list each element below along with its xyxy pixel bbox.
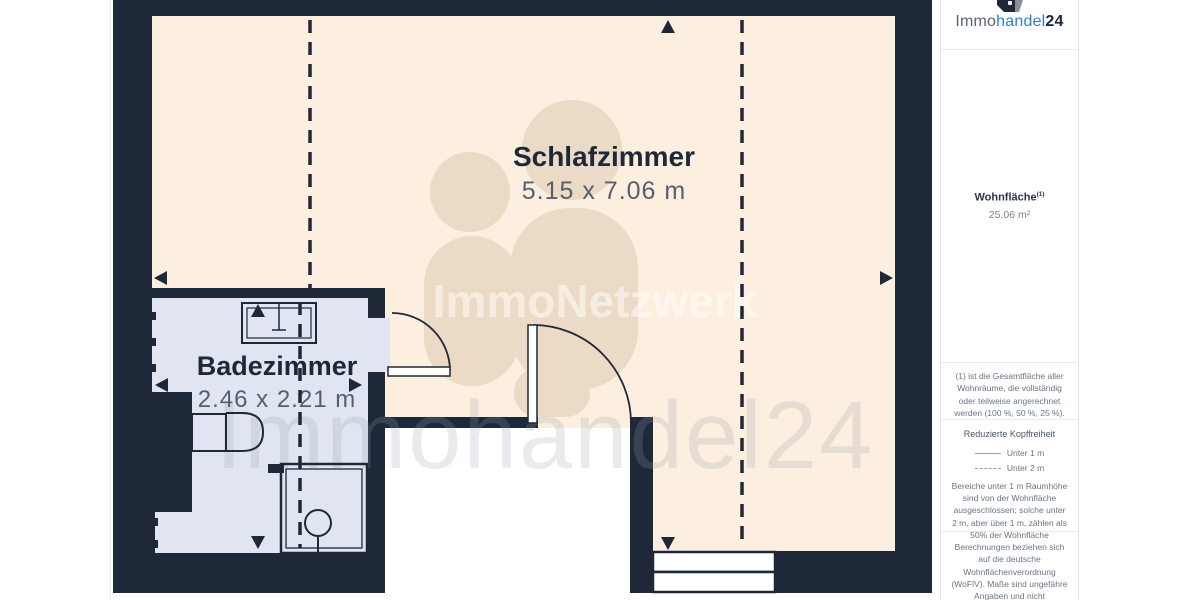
room-label-badezimmer: Badezimmer: [197, 351, 358, 381]
footnote-block: (1) ist die Gesamtfläche aller Wohnräume…: [941, 363, 1078, 420]
living-area-block: Wohnfläche(1) 25.06 m²: [941, 50, 1078, 363]
room-label-schlafzimmer: Schlafzimmer: [513, 141, 695, 172]
legend-row-under-2m: Unter 2 m: [950, 462, 1069, 474]
info-sidebar: Immohandel24 Wohnfläche(1) 25.06 m² (1) …: [940, 0, 1079, 600]
solid-line-icon: [975, 453, 1001, 454]
brand-suffix: 24: [1045, 13, 1063, 30]
stairs-icon: [653, 552, 775, 592]
disclaimer-block: Berechnungen beziehen sich auf die deuts…: [941, 532, 1078, 600]
logo-block: Immohandel24: [941, 0, 1078, 50]
brand-house-icon: [995, 0, 1025, 12]
headroom-title: Reduzierte Kopffreiheit: [950, 428, 1069, 441]
room-dimensions-badezimmer: 2.46 x 2.21 m: [198, 386, 356, 413]
room-dimensions-schlafzimmer: 5.15 x 7.06 m: [522, 177, 686, 205]
brand-accent: handel: [996, 13, 1045, 30]
legend-row-under-1m: Unter 1 m: [950, 447, 1069, 459]
headroom-block: Reduzierte Kopffreiheit Unter 1 m Unter …: [941, 420, 1078, 532]
living-area-value: 25.06 m²: [989, 209, 1030, 221]
floorplan-page: ImmoNetzwerk Immohandel24 Schlafzimmer 5…: [0, 0, 1200, 600]
living-area-label: Wohnfläche(1): [974, 191, 1044, 204]
legend-label-under-1m: Unter 1 m: [1007, 447, 1044, 459]
brand-wordmark: Immohandel24: [955, 13, 1063, 31]
living-area-footnote-marker: (1): [1037, 191, 1045, 198]
watermark-network: ImmoNetzwerk: [433, 275, 758, 327]
bathroom-doorway: [368, 318, 390, 372]
brand-prefix: Immo: [955, 13, 996, 30]
living-area-title: Wohnfläche: [974, 191, 1036, 203]
legend-label-under-2m: Unter 2 m: [1007, 462, 1044, 474]
dashed-line-icon: [975, 468, 1001, 469]
